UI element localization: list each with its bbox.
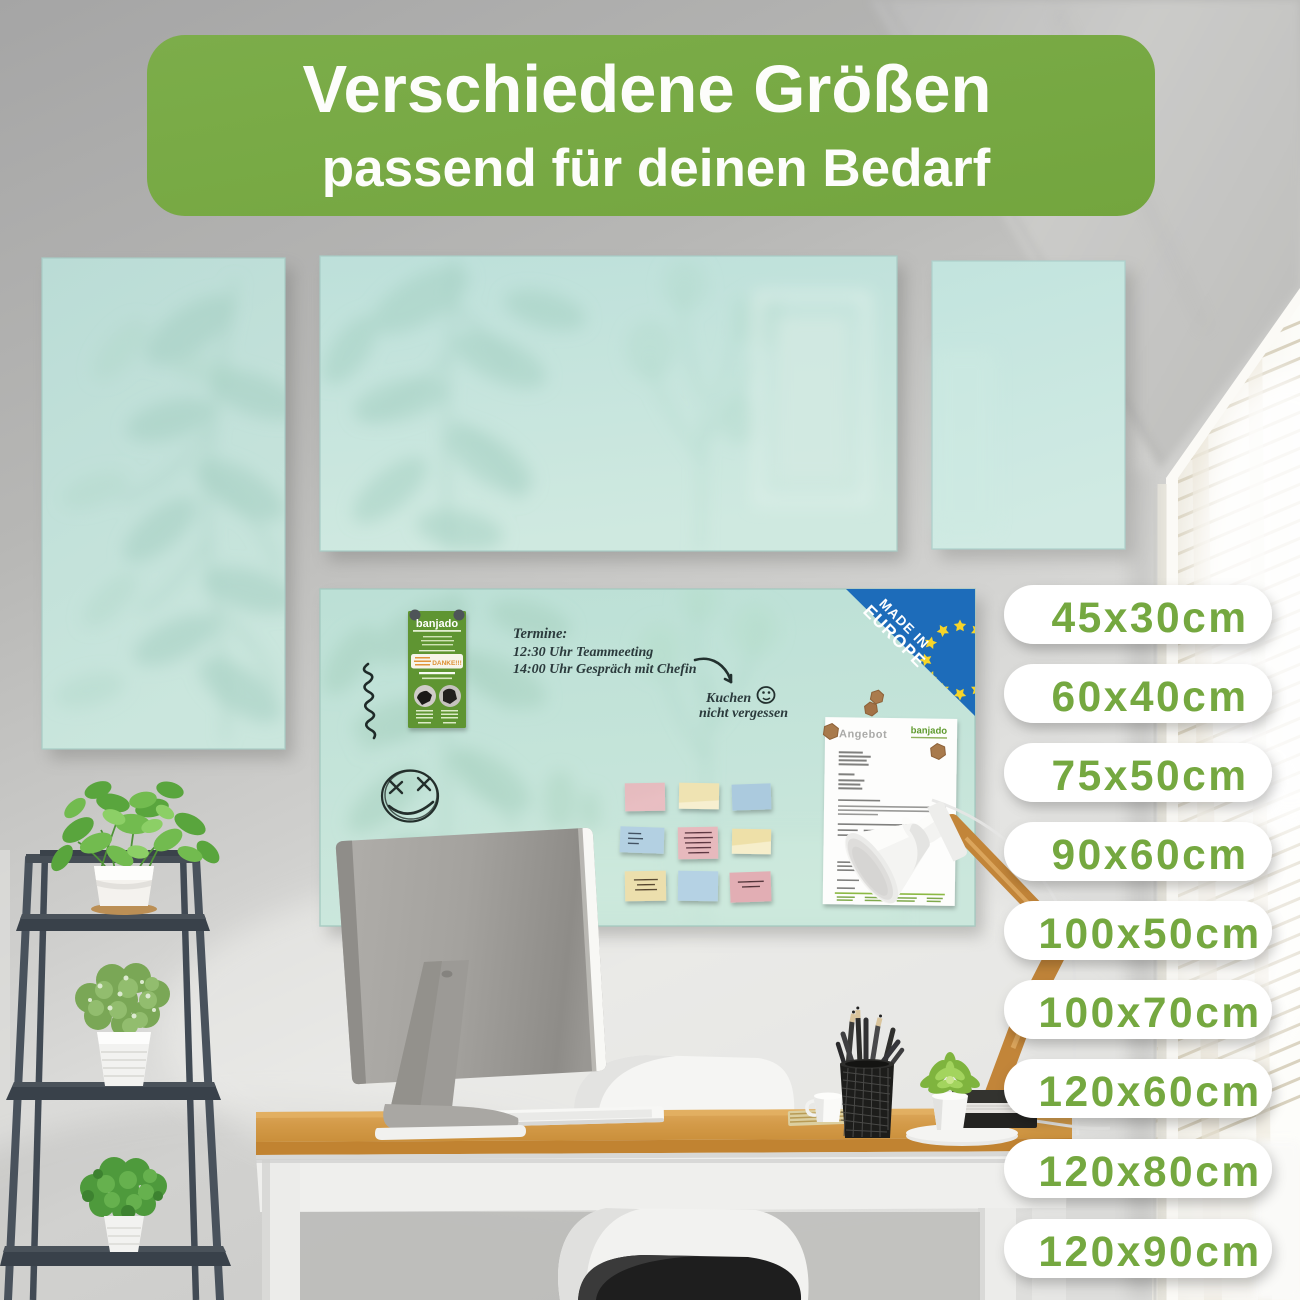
svg-text:100x50cm: 100x50cm: [1038, 911, 1261, 958]
svg-text:120x90cm: 120x90cm: [1038, 1229, 1261, 1276]
svg-text:Termine:: Termine:: [513, 626, 567, 642]
svg-text:100x70cm: 100x70cm: [1038, 990, 1261, 1037]
svg-text:120x80cm: 120x80cm: [1038, 1149, 1261, 1196]
svg-text:banjado: banjado: [416, 618, 458, 630]
svg-text:12:30 Uhr Teammeeting: 12:30 Uhr Teammeeting: [513, 645, 653, 660]
svg-text:nicht vergessen: nicht vergessen: [699, 706, 788, 721]
svg-text:90x60cm: 90x60cm: [1051, 832, 1248, 879]
svg-text:60x40cm: 60x40cm: [1051, 674, 1248, 721]
svg-text:DANKE!!!: DANKE!!!: [432, 660, 462, 667]
svg-text:Angebot: Angebot: [839, 728, 887, 741]
svg-text:45x30cm: 45x30cm: [1051, 595, 1248, 642]
svg-text:Verschiedene Größen: Verschiedene Größen: [303, 52, 992, 127]
svg-text:Kuchen: Kuchen: [705, 691, 751, 706]
svg-text:120x60cm: 120x60cm: [1038, 1069, 1261, 1116]
svg-text:banjado: banjado: [911, 725, 948, 737]
svg-text:14:00 Uhr Gespräch mit Chefin: 14:00 Uhr Gespräch mit Chefin: [513, 662, 697, 677]
svg-text:75x50cm: 75x50cm: [1051, 753, 1248, 800]
svg-text:passend für deinen Bedarf: passend für deinen Bedarf: [322, 139, 991, 198]
